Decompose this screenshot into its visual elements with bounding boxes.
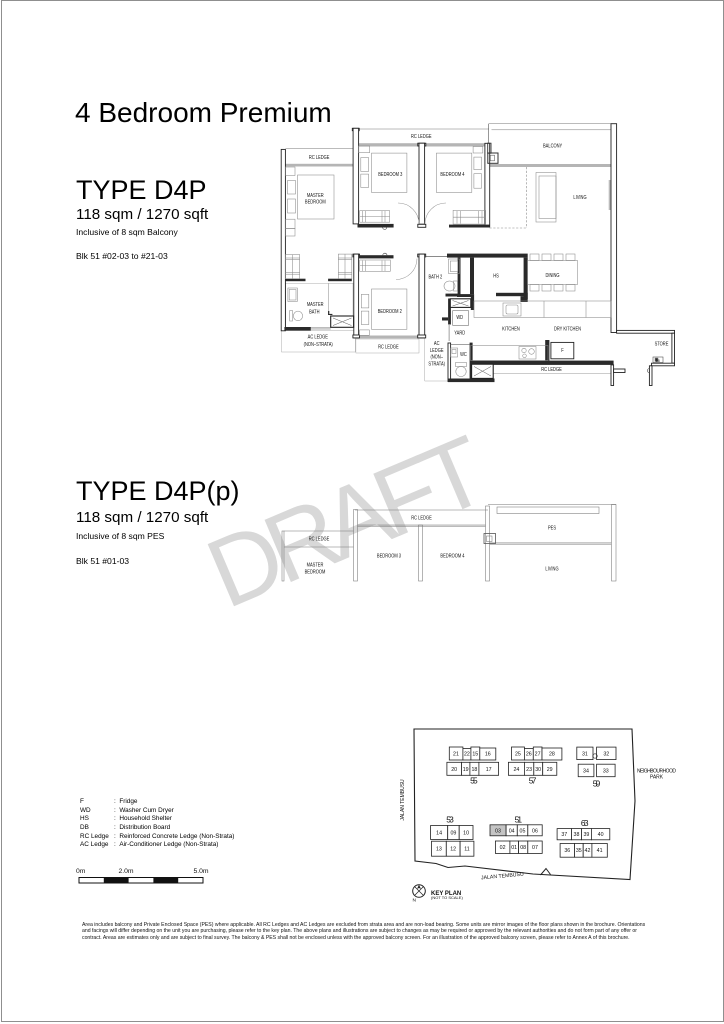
svg-text:BEDROOM 4: BEDROOM 4 xyxy=(440,553,464,560)
svg-text:DRY KITCHEN: DRY KITCHEN xyxy=(554,326,581,333)
svg-text:LIVING: LIVING xyxy=(545,566,558,573)
svg-text:JALAN TEMBUSU: JALAN TEMBUSU xyxy=(481,872,524,882)
svg-text:04: 04 xyxy=(509,828,515,834)
svg-text:5.0m: 5.0m xyxy=(193,868,208,875)
svg-text:KITCHEN: KITCHEN xyxy=(502,326,520,333)
svg-text:20: 20 xyxy=(451,767,457,773)
svg-text:15: 15 xyxy=(472,752,478,758)
svg-text:BEDROOM: BEDROOM xyxy=(305,199,326,206)
svg-text:F: F xyxy=(561,347,563,354)
svg-text:51: 51 xyxy=(515,815,523,825)
svg-text:16: 16 xyxy=(485,752,491,758)
svg-text:28: 28 xyxy=(549,752,555,758)
svg-text:MASTER: MASTER xyxy=(307,301,324,308)
svg-text:DB: DB xyxy=(656,358,661,363)
svg-text:STORE: STORE xyxy=(655,341,669,348)
svg-text:03: 03 xyxy=(495,828,501,834)
svg-text:63: 63 xyxy=(581,818,589,828)
svg-text:19: 19 xyxy=(463,767,469,773)
svg-text:06: 06 xyxy=(532,828,538,834)
svg-text:MASTER: MASTER xyxy=(307,193,324,200)
svg-text:RC LEDGE: RC LEDGE xyxy=(541,366,562,373)
svg-text:40: 40 xyxy=(598,832,604,838)
svg-text:(NON–: (NON– xyxy=(430,354,443,361)
svg-text:JALAN TEMBUSU: JALAN TEMBUSU xyxy=(400,779,406,821)
svg-text:WC: WC xyxy=(460,352,467,359)
svg-text:BALCONY: BALCONY xyxy=(543,143,563,150)
svg-text:21: 21 xyxy=(453,752,459,758)
svg-text:BATH: BATH xyxy=(309,309,320,316)
svg-text:01: 01 xyxy=(511,845,517,851)
svg-text:34: 34 xyxy=(583,768,589,774)
svg-text:33: 33 xyxy=(603,768,609,774)
svg-text:42: 42 xyxy=(585,848,591,854)
svg-text:0m: 0m xyxy=(76,868,86,875)
svg-text:08: 08 xyxy=(520,845,526,851)
svg-text:24: 24 xyxy=(513,767,519,773)
svg-text:PARK: PARK xyxy=(650,775,664,781)
svg-text:(NON–STRATA): (NON–STRATA) xyxy=(304,341,333,348)
svg-text:26: 26 xyxy=(526,752,532,758)
svg-text:RC LEDGE: RC LEDGE xyxy=(309,536,330,543)
svg-text:59: 59 xyxy=(593,779,601,789)
svg-text:10: 10 xyxy=(463,831,469,837)
svg-text:57: 57 xyxy=(529,776,537,786)
svg-text:MASTER: MASTER xyxy=(307,562,324,569)
svg-text:2.0m: 2.0m xyxy=(118,868,133,875)
svg-text:38: 38 xyxy=(574,832,580,838)
svg-text:RC LEDGE: RC LEDGE xyxy=(411,133,432,140)
svg-text:27: 27 xyxy=(535,752,541,758)
svg-text:32: 32 xyxy=(603,751,609,757)
svg-text:02: 02 xyxy=(500,845,506,851)
svg-text:29: 29 xyxy=(547,767,553,773)
svg-text:55: 55 xyxy=(470,776,478,786)
svg-text:STRATA): STRATA) xyxy=(428,361,445,368)
svg-text:07: 07 xyxy=(532,845,538,851)
svg-text:BEDROOM: BEDROOM xyxy=(305,569,326,576)
svg-text:41: 41 xyxy=(597,848,603,854)
svg-text:PES: PES xyxy=(548,525,557,532)
svg-text:05: 05 xyxy=(520,828,526,834)
svg-text:09: 09 xyxy=(450,831,456,837)
svg-text:36: 36 xyxy=(564,848,570,854)
svg-text:39: 39 xyxy=(583,832,589,838)
svg-text:BATH 2: BATH 2 xyxy=(429,274,443,281)
svg-text:31: 31 xyxy=(582,751,588,757)
svg-text:17: 17 xyxy=(486,767,492,773)
svg-text:18: 18 xyxy=(471,767,477,773)
svg-text:14: 14 xyxy=(436,831,442,837)
svg-text:AC LEDGE: AC LEDGE xyxy=(308,334,329,341)
svg-text:37: 37 xyxy=(561,832,567,838)
svg-text:N: N xyxy=(413,898,417,904)
svg-text:12: 12 xyxy=(450,847,456,853)
svg-text:YARD: YARD xyxy=(454,330,465,337)
svg-text:LEDGE: LEDGE xyxy=(430,347,444,354)
svg-text:11: 11 xyxy=(464,847,470,853)
svg-text:WD: WD xyxy=(456,314,463,321)
svg-text:BEDROOM 4: BEDROOM 4 xyxy=(440,171,464,178)
svg-text:13: 13 xyxy=(436,847,442,853)
svg-text:53: 53 xyxy=(446,815,454,825)
svg-text:RC LEDGE: RC LEDGE xyxy=(309,154,330,161)
svg-text:RC LEDGE: RC LEDGE xyxy=(378,344,399,351)
svg-text:22: 22 xyxy=(464,752,470,758)
svg-text:HS: HS xyxy=(493,273,499,280)
svg-text:LIVING: LIVING xyxy=(573,194,586,201)
svg-text:BEDROOM 2: BEDROOM 2 xyxy=(378,309,402,316)
svg-text:35: 35 xyxy=(576,848,582,854)
svg-text:23: 23 xyxy=(526,767,532,773)
svg-text:BEDROOM 3: BEDROOM 3 xyxy=(378,171,402,178)
svg-text:30: 30 xyxy=(535,767,541,773)
svg-text:(NOT TO SCALE): (NOT TO SCALE) xyxy=(431,895,463,900)
svg-text:BEDROOM 3: BEDROOM 3 xyxy=(377,553,401,560)
svg-text:DINING: DINING xyxy=(545,272,559,279)
svg-text:25: 25 xyxy=(515,752,521,758)
svg-text:RC LEDGE: RC LEDGE xyxy=(411,515,432,522)
svg-text:AC: AC xyxy=(434,340,440,347)
